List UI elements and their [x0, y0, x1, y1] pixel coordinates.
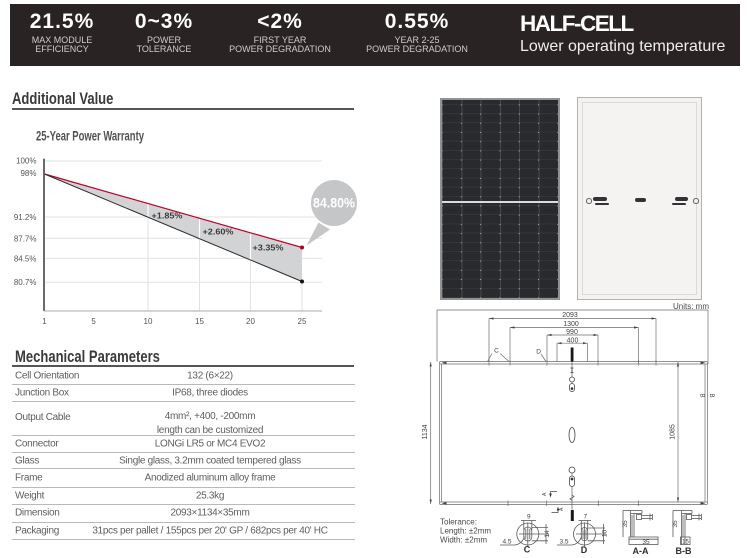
svg-text:D: D: [581, 545, 588, 555]
svg-text:9: 9: [527, 514, 531, 521]
svg-text:84.5%: 84.5%: [14, 254, 37, 263]
svg-text:A: A: [542, 492, 548, 496]
svg-text:14: 14: [544, 530, 551, 538]
svg-text:10: 10: [602, 530, 609, 538]
svg-text:87.7%: 87.7%: [14, 234, 37, 243]
svg-text:3.5: 3.5: [559, 539, 568, 546]
svg-text:35: 35: [622, 520, 629, 528]
svg-text:20: 20: [246, 317, 255, 326]
svg-text:B: B: [699, 394, 705, 398]
svg-text:A-A: A-A: [633, 546, 649, 556]
svg-text:98%: 98%: [20, 169, 36, 178]
svg-text:100%: 100%: [16, 157, 36, 166]
svg-text:+3.35%: +3.35%: [253, 244, 284, 253]
svg-text:1134: 1134: [422, 424, 429, 439]
svg-text:1: 1: [42, 317, 47, 326]
svg-text:Length: ±2mm: Length: ±2mm: [440, 527, 491, 536]
svg-text:+2.60%: +2.60%: [203, 228, 234, 237]
svg-text:84.80%: 84.80%: [313, 196, 355, 211]
svg-text:B-B: B-B: [676, 546, 692, 556]
svg-text:25: 25: [298, 317, 307, 326]
svg-text:A: A: [559, 507, 565, 511]
svg-text:25-Year Power Warranty: 25-Year Power Warranty: [36, 129, 144, 144]
svg-text:Tolerance:: Tolerance:: [440, 518, 477, 527]
svg-text:80.7%: 80.7%: [14, 278, 37, 287]
svg-text:C: C: [524, 545, 531, 555]
svg-text:15: 15: [682, 540, 689, 546]
svg-text:4.5: 4.5: [502, 539, 511, 546]
svg-text:B: B: [708, 394, 714, 398]
svg-text:D: D: [536, 349, 541, 356]
svg-text:+1.85%: +1.85%: [152, 212, 183, 221]
svg-text:C: C: [494, 348, 499, 355]
svg-text:1085: 1085: [670, 424, 677, 440]
svg-text:2093: 2093: [562, 312, 578, 319]
svg-text:1300: 1300: [563, 321, 579, 328]
svg-text:5: 5: [91, 317, 96, 326]
svg-text:400: 400: [567, 337, 579, 344]
svg-text:7: 7: [583, 514, 587, 521]
svg-text:990: 990: [566, 329, 578, 336]
svg-text:Width: ±2mm: Width: ±2mm: [440, 536, 487, 545]
svg-text:35: 35: [672, 520, 679, 528]
svg-text:91.2%: 91.2%: [14, 213, 37, 222]
svg-text:10: 10: [144, 317, 153, 326]
svg-text:35: 35: [642, 539, 650, 546]
svg-text:15: 15: [195, 317, 204, 326]
